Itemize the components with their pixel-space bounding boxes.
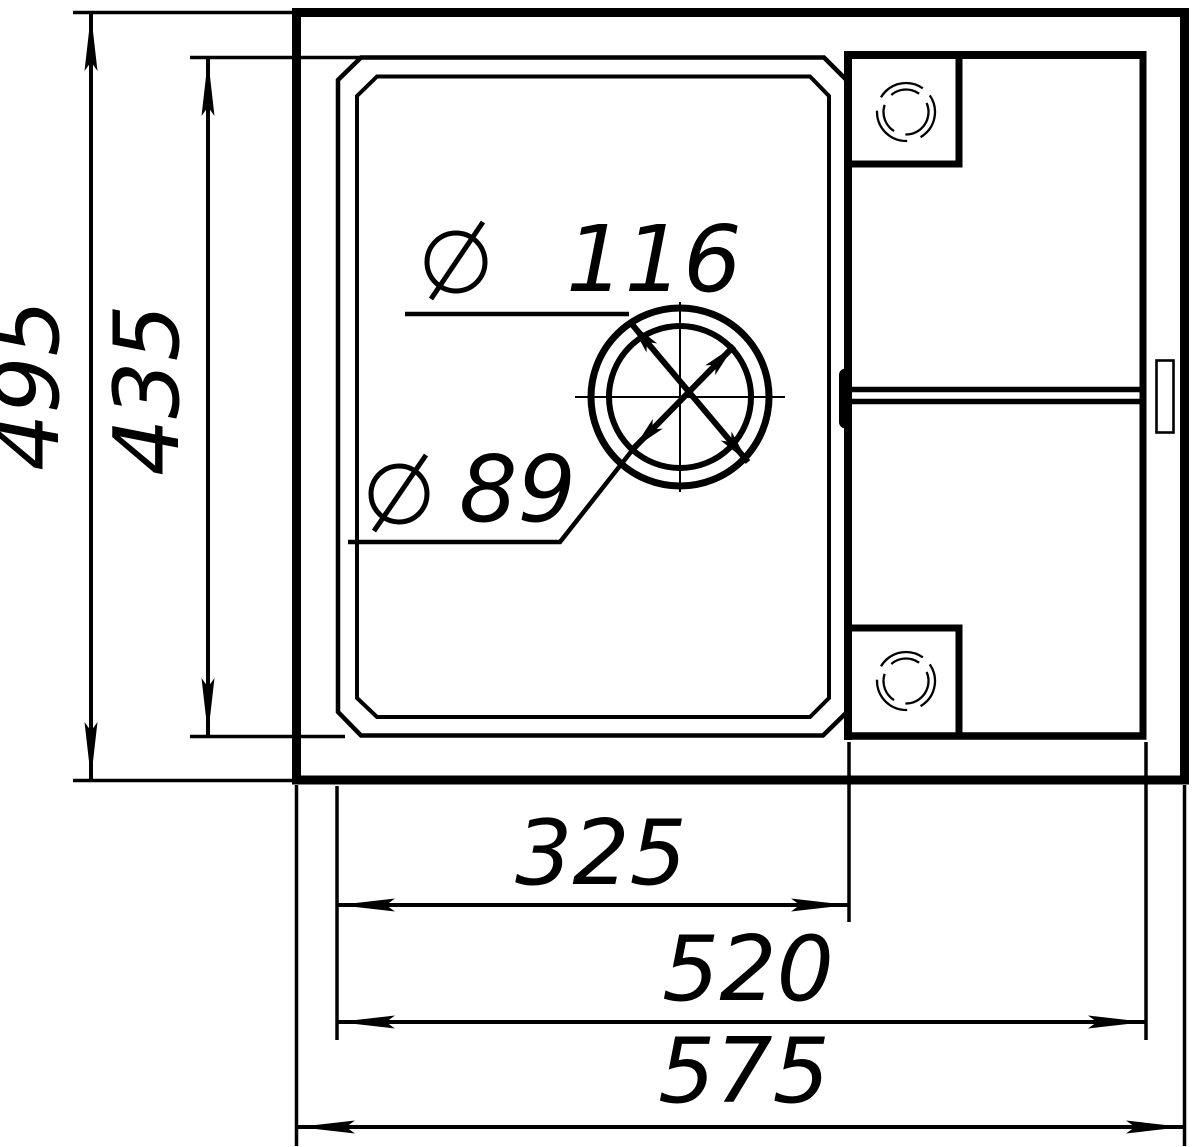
tap-platform-top: [845, 53, 959, 164]
drain-outer-diameter-label: 116: [566, 206, 742, 313]
tap-hole-top-icon: [866, 72, 947, 153]
extension-lines: [73, 13, 1185, 1147]
drain-inner-diameter-label: 89: [459, 436, 576, 543]
overall-depth-dimension-label: 495: [0, 299, 80, 471]
dimension-lines: [91, 14, 1183, 1127]
rim-width-dimension-label: 520: [662, 917, 834, 1022]
bowl-width-dimension-label: 325: [515, 801, 687, 906]
drainboard-ledge: [846, 375, 1142, 422]
tap-hole-bottom-icon: [866, 641, 947, 722]
tap-platform-bottom: [845, 628, 959, 738]
diameter-symbol-89-icon: [371, 455, 427, 531]
overall-width-dimension-label: 575: [658, 1019, 830, 1124]
drain-hole: [575, 302, 785, 492]
technical-drawing: 116 89 325 520 575 435 495: [0, 0, 1200, 1147]
sink-drawing-svg: 116 89 325 520 575 435 495: [0, 0, 1200, 1147]
bowl-depth-dimension-label: 435: [95, 304, 200, 476]
diameter-symbol-116-icon: [427, 222, 485, 299]
overflow-slot: [1157, 361, 1174, 433]
